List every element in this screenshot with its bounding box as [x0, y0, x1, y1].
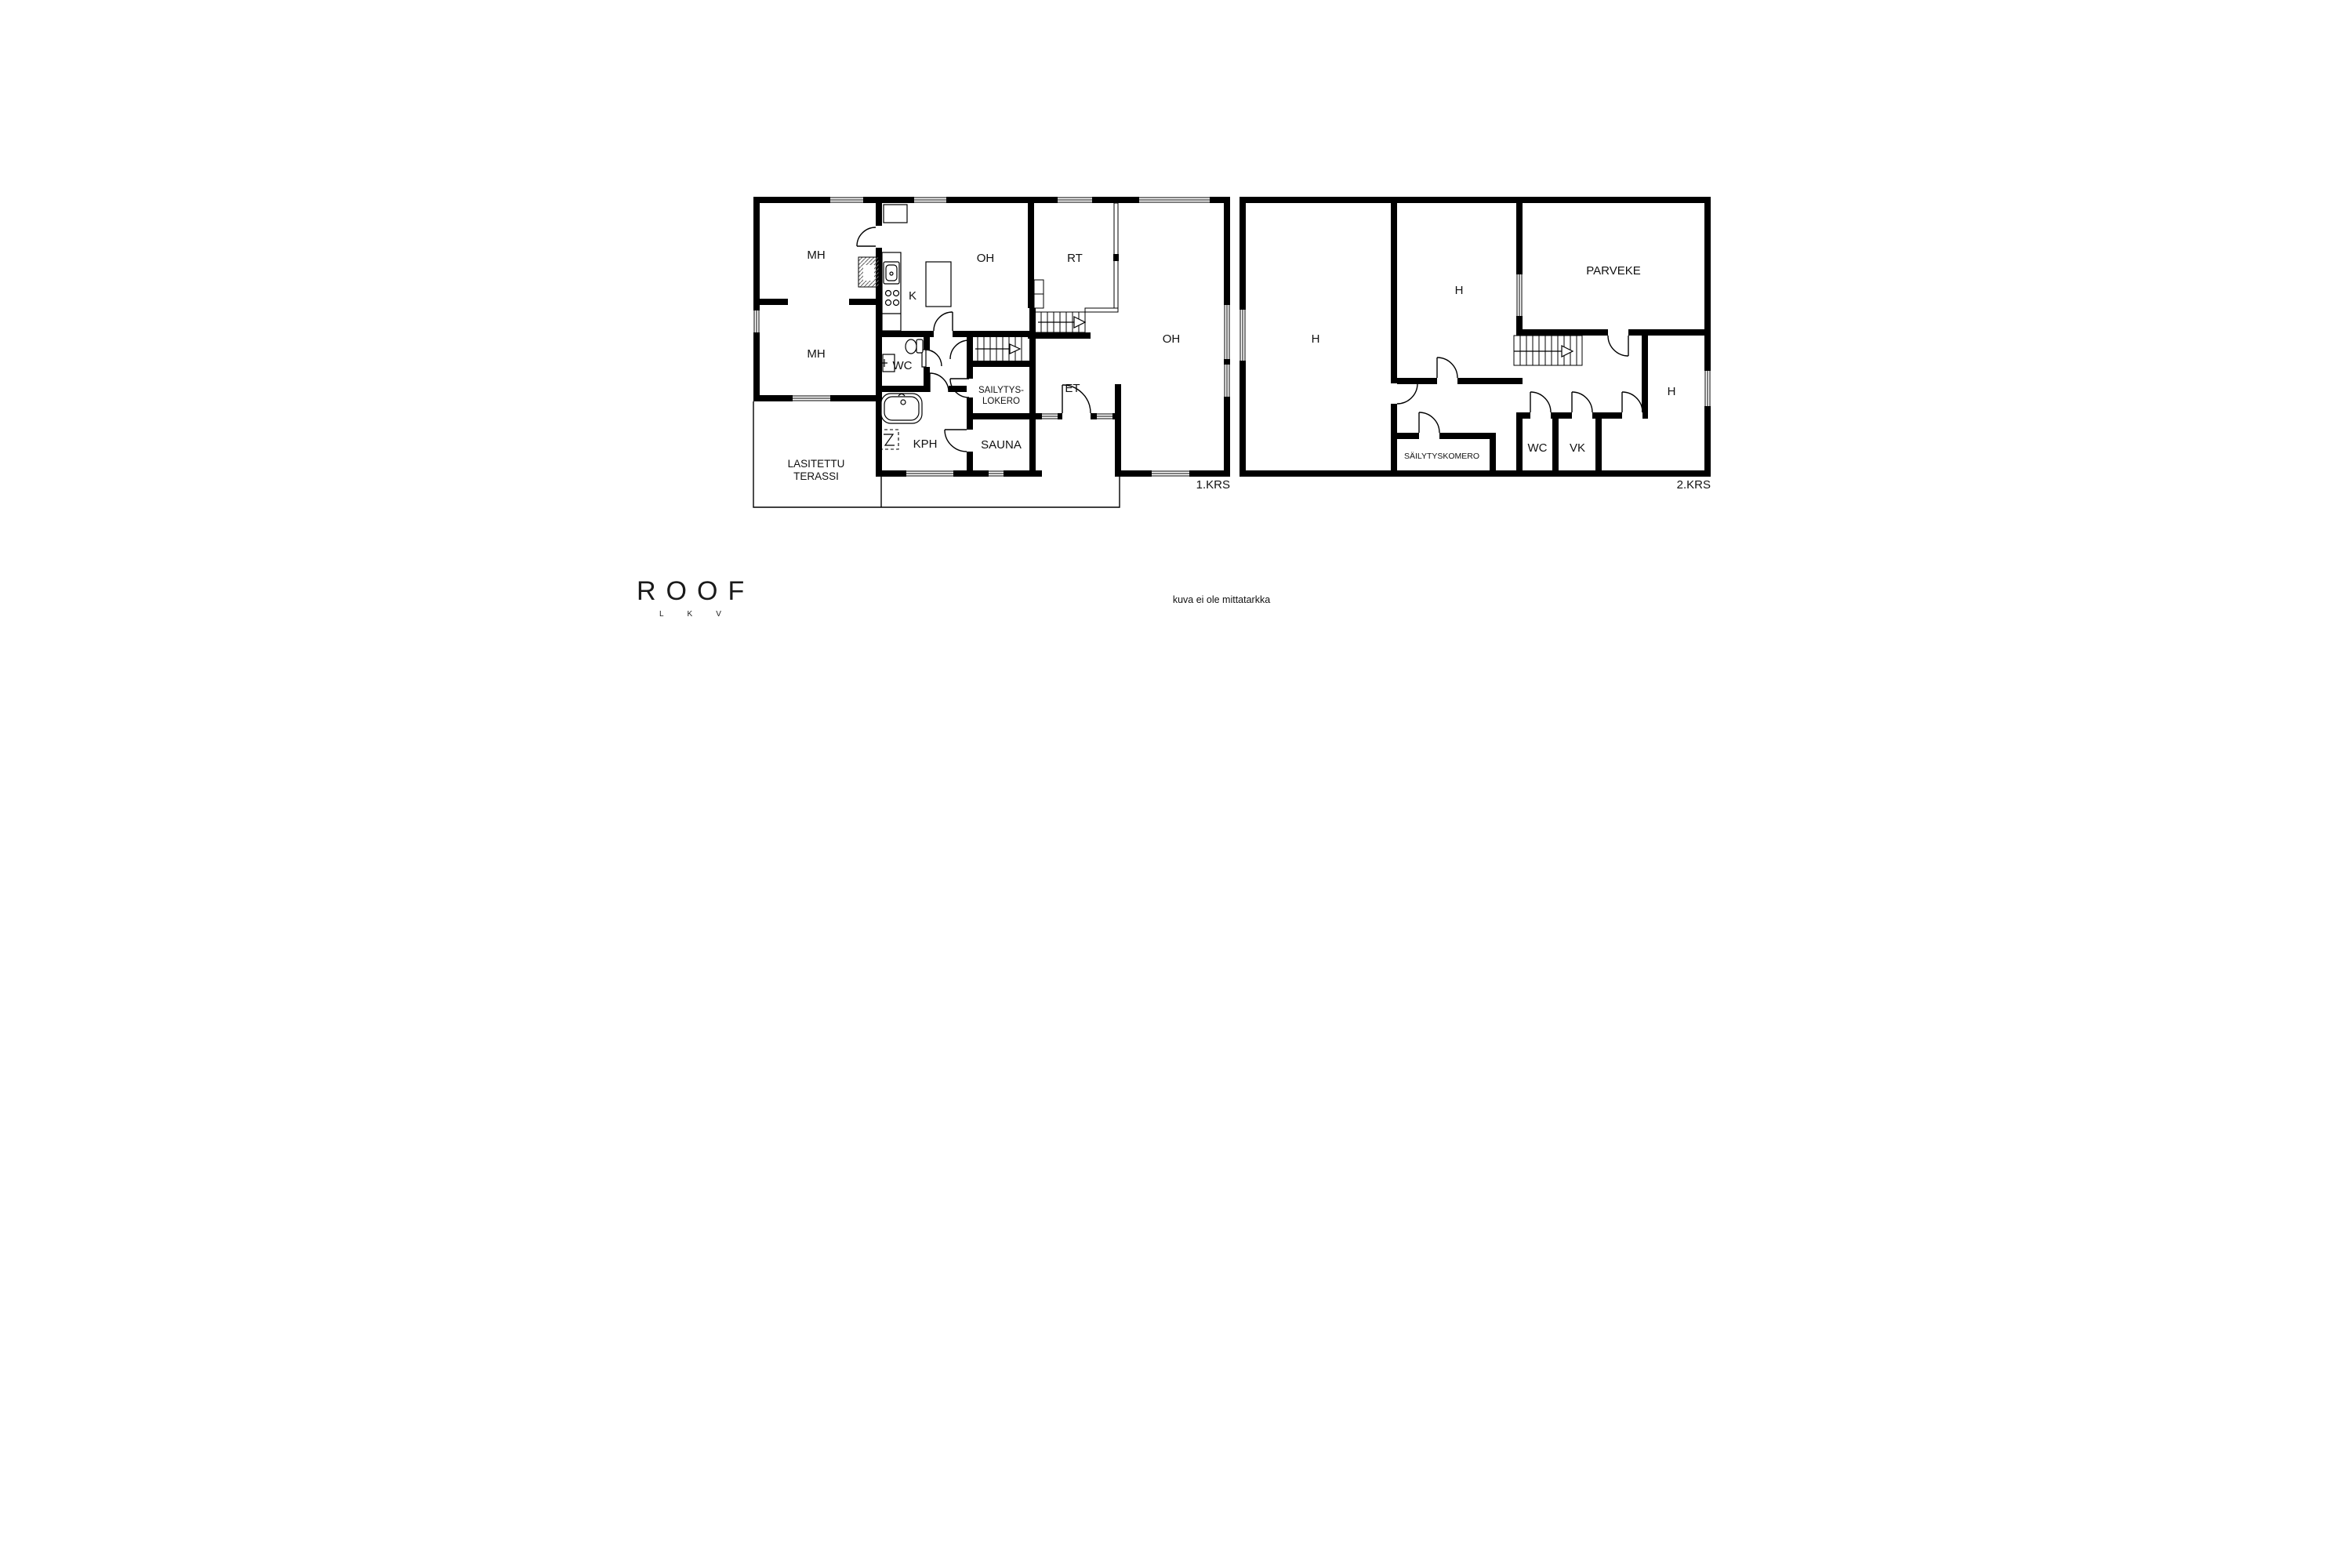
- door: [1530, 392, 1551, 419]
- door: [1391, 383, 1417, 404]
- room-label-mh-top: MH: [807, 249, 825, 262]
- door: [857, 226, 882, 248]
- disclaimer-text: kuva ei ole mittatarkka: [1173, 594, 1270, 605]
- window: [1152, 470, 1189, 477]
- window: [914, 197, 946, 203]
- kitchen-island: [926, 262, 951, 307]
- room-label-et: ET: [1065, 382, 1080, 395]
- room-label-oh-upper: OH: [977, 252, 995, 265]
- door: [1419, 412, 1439, 439]
- window: [1704, 371, 1711, 406]
- window: [753, 310, 760, 332]
- room-label-kitchen: K: [909, 289, 916, 303]
- room-label-rt: RT: [1067, 252, 1083, 265]
- fridge-icon: [884, 205, 907, 223]
- floor1-walls: [753, 197, 1230, 477]
- window: [1058, 197, 1092, 203]
- stairs-main: [1034, 280, 1085, 332]
- door: [950, 340, 969, 359]
- roof-logo: ROOF LKV: [637, 576, 754, 619]
- window: [1240, 310, 1246, 361]
- window: [1224, 305, 1230, 359]
- room-label-vk: VK: [1570, 441, 1585, 455]
- room-label-h-right: H: [1668, 385, 1676, 398]
- door: [1608, 329, 1628, 356]
- floorplan-image: MH MH K OH RT OH WC SAILYTYS- LOKERO ET …: [571, 0, 1781, 803]
- kitchen-counter-icon: [882, 205, 907, 331]
- rt-thin-partition: [1085, 203, 1119, 312]
- door: [945, 430, 973, 452]
- room-label-mh-bottom: MH: [807, 347, 825, 361]
- window: [1097, 413, 1112, 419]
- door: [1437, 358, 1457, 384]
- window: [793, 395, 830, 401]
- window: [1042, 413, 1058, 419]
- floor2-label: 2.KRS: [1677, 478, 1711, 492]
- room-label-terrace-line2: TERASSI: [793, 470, 839, 482]
- stairs-upper: [975, 337, 1022, 361]
- room-label-wc: WC: [893, 359, 913, 372]
- door: [922, 350, 942, 367]
- room-label-storage2: SÄILYTYSKOMERO: [1404, 452, 1479, 461]
- window: [1224, 365, 1230, 397]
- room-label-balcony: PARVEKE: [1586, 264, 1640, 278]
- room-label-wc2: WC: [1528, 441, 1548, 455]
- room-label-storage-line2: LOKERO: [982, 397, 1020, 406]
- fireplace-icon: [858, 257, 879, 287]
- floorplan-page: MH MH K OH RT OH WC SAILYTYS- LOKERO ET …: [571, 0, 1781, 803]
- floor2-plan: H H PARVEKE SÄILYTYSKOMERO WC VK H 2.KRS: [1240, 197, 1711, 492]
- window: [906, 470, 953, 477]
- room-label-h-left: H: [1312, 332, 1320, 346]
- logo-sub-text: LKV: [659, 610, 745, 619]
- stairs-arrow-icon: [1562, 346, 1573, 357]
- room-label-kph: KPH: [913, 437, 938, 451]
- room-label-storage-line1: SAILYTYS-: [978, 386, 1024, 395]
- door: [934, 312, 953, 337]
- door: [930, 373, 949, 392]
- floor1-plan: MH MH K OH RT OH WC SAILYTYS- LOKERO ET …: [753, 197, 1230, 507]
- room-label-sauna: SAUNA: [981, 438, 1022, 452]
- toilet-icon: [906, 339, 923, 354]
- window: [989, 470, 1004, 477]
- stove-icon: [886, 291, 899, 306]
- door: [1572, 392, 1592, 419]
- floor1-label: 1.KRS: [1196, 478, 1230, 492]
- floor2-windows: [1240, 274, 1711, 406]
- door: [1622, 392, 1642, 419]
- stairs-arrow-icon: [1074, 317, 1085, 328]
- floor2-walls: [1240, 197, 1711, 477]
- window: [830, 197, 863, 203]
- room-label-h-middle: H: [1455, 284, 1464, 297]
- bathtub-icon: [881, 394, 922, 423]
- room-label-oh-main: OH: [1163, 332, 1181, 346]
- window: [1516, 274, 1523, 316]
- window: [1139, 197, 1210, 203]
- room-label-terrace-line1: LASITETTU: [788, 458, 845, 470]
- logo-text: ROOF: [637, 576, 754, 606]
- stairs-floor2: [1514, 336, 1582, 365]
